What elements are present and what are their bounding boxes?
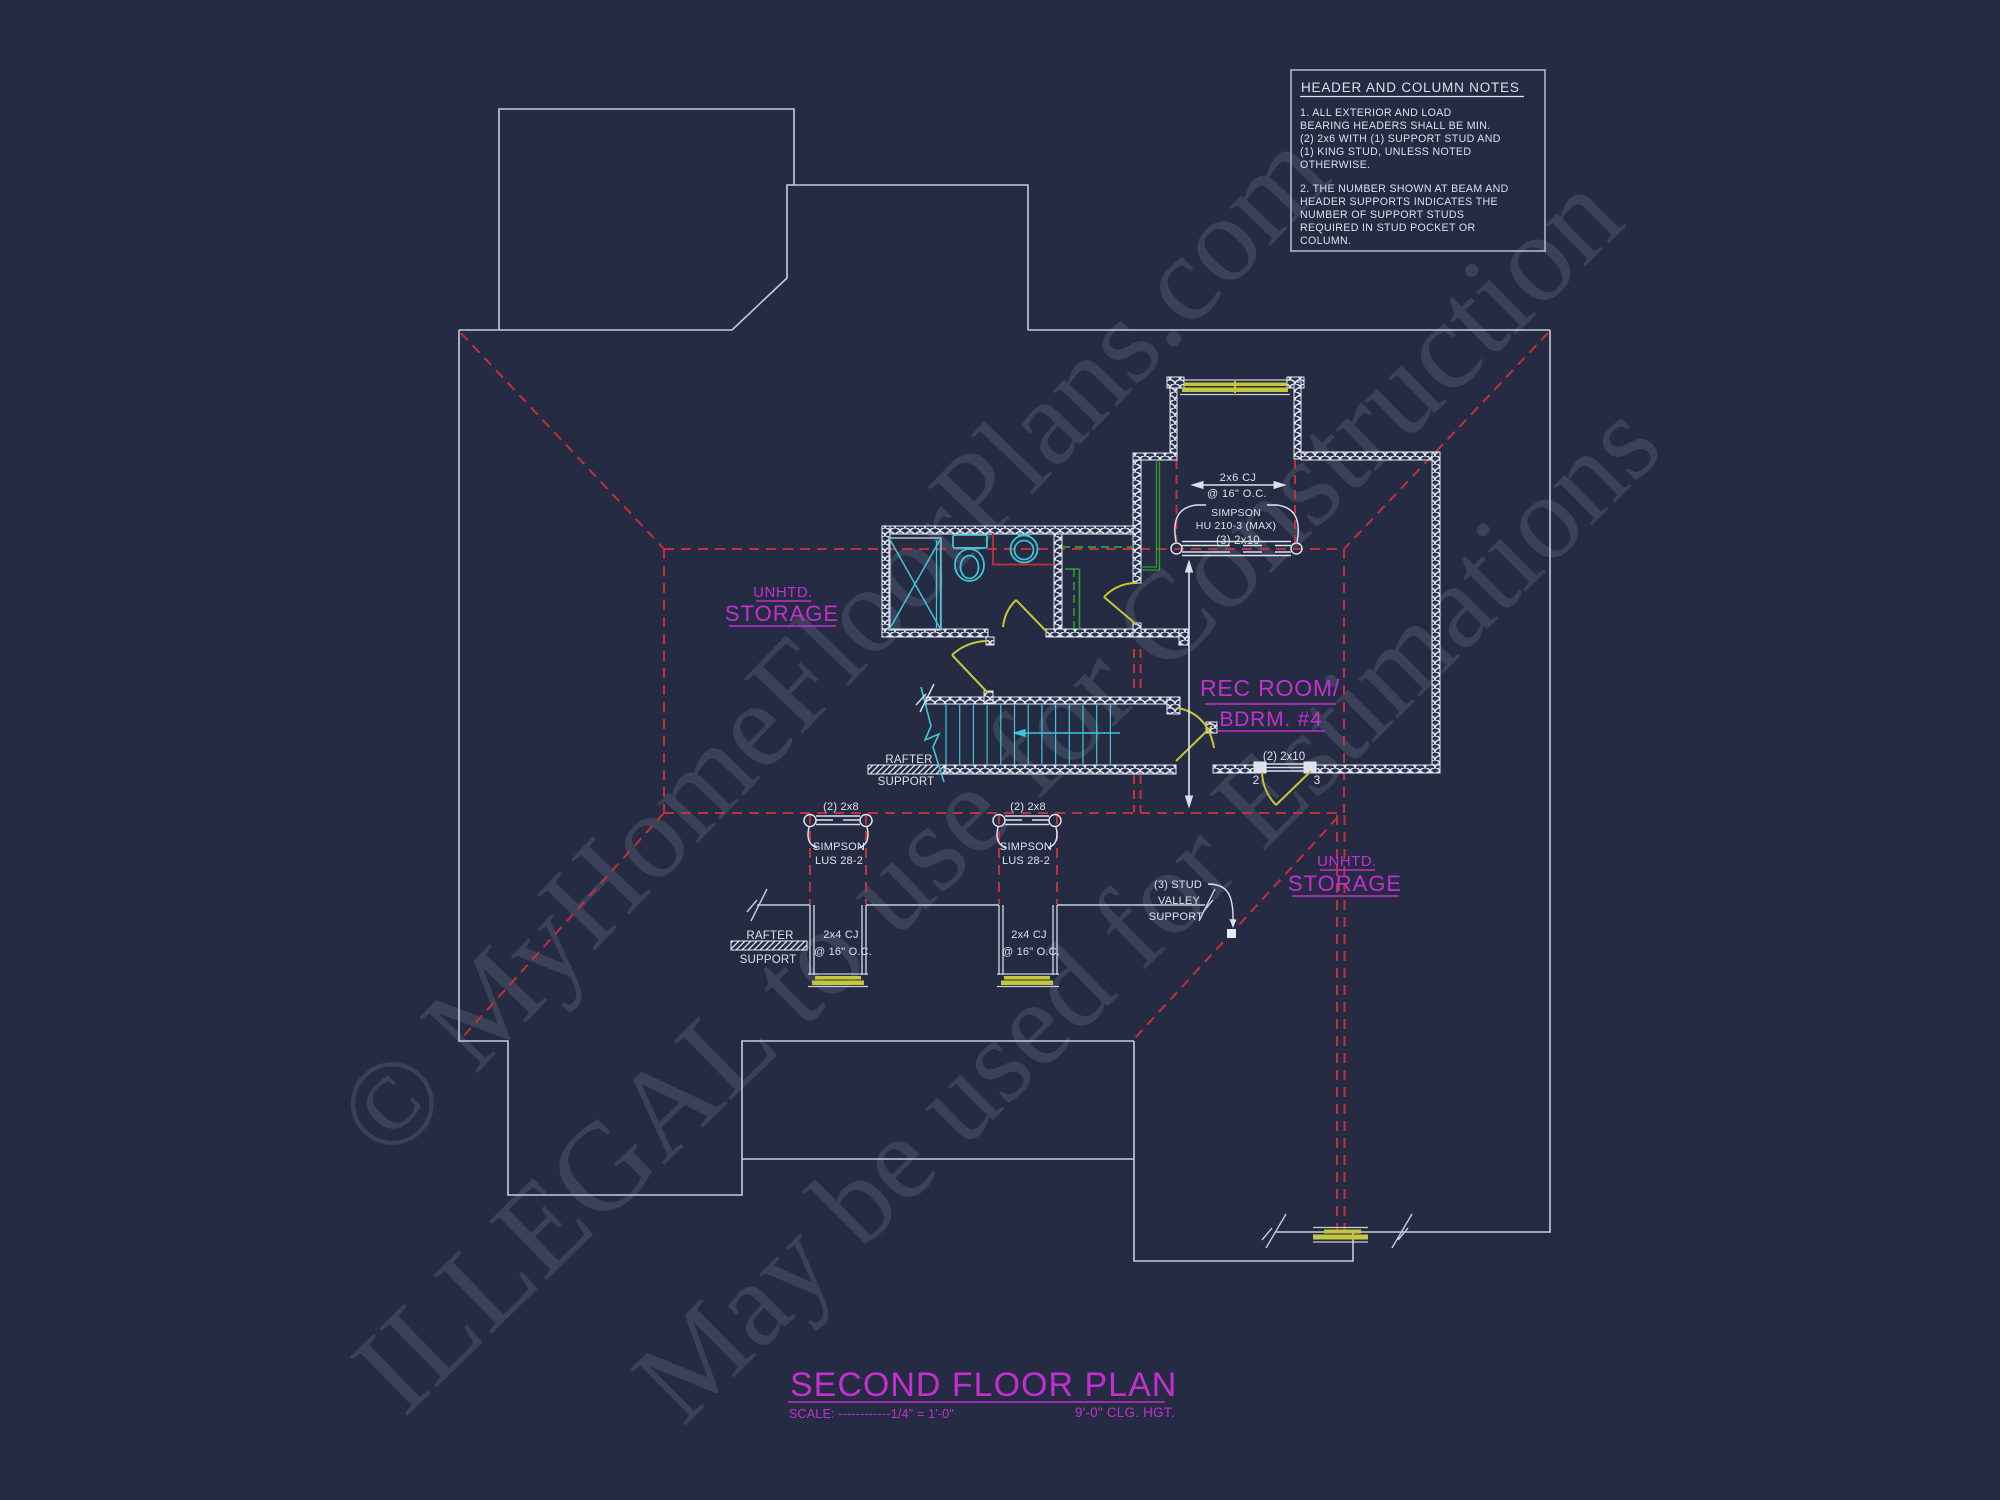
svg-text:@ 16" O.C.: @ 16" O.C. (814, 946, 872, 958)
svg-text:VALLEY: VALLEY (1158, 895, 1200, 907)
svg-text:SUPPORT: SUPPORT (740, 954, 797, 966)
svg-text:(2) 2x8: (2) 2x8 (823, 801, 859, 813)
svg-text:BEARING HEADERS SHALL BE MIN.: BEARING HEADERS SHALL BE MIN. (1300, 120, 1491, 132)
svg-text:SUPPORT: SUPPORT (1149, 911, 1203, 923)
svg-text:LUS 28-2: LUS 28-2 (1002, 855, 1050, 867)
svg-text:SCALE: ------------1/4" = 1'-0: SCALE: ------------1/4" = 1'-0" (789, 1407, 954, 1421)
svg-text:@ 16" O.C.: @ 16" O.C. (1002, 946, 1060, 958)
svg-text:@ 16" O.C.: @ 16" O.C. (1207, 488, 1267, 500)
svg-text:2x4 CJ: 2x4 CJ (1011, 929, 1046, 941)
svg-text:LUS 28-2: LUS 28-2 (815, 855, 863, 867)
svg-text:SECOND FLOOR PLAN: SECOND FLOOR PLAN (790, 1366, 1177, 1404)
svg-text:(1) KING STUD, UNLESS NOTED: (1) KING STUD, UNLESS NOTED (1300, 146, 1471, 158)
svg-text:SIMPSON: SIMPSON (1211, 507, 1261, 519)
svg-text:BDRM. #4: BDRM. #4 (1219, 708, 1322, 731)
svg-text:HEADER AND COLUMN NOTES: HEADER AND COLUMN NOTES (1301, 80, 1520, 95)
svg-text:9'-0" CLG. HGT.: 9'-0" CLG. HGT. (1075, 1405, 1175, 1420)
svg-text:2x4 CJ: 2x4 CJ (823, 929, 858, 941)
svg-text:2x6 CJ: 2x6 CJ (1220, 472, 1257, 484)
svg-text:REQUIRED IN STUD POCKET OR: REQUIRED IN STUD POCKET OR (1300, 222, 1475, 234)
svg-text:HEADER SUPPORTS INDICATES THE: HEADER SUPPORTS INDICATES THE (1300, 196, 1498, 208)
svg-text:UNHTD.: UNHTD. (753, 584, 813, 601)
svg-text:COLUMN.: COLUMN. (1300, 235, 1351, 247)
svg-text:RAFTER: RAFTER (885, 754, 932, 766)
svg-text:3: 3 (1314, 773, 1321, 787)
svg-text:SIMPSON: SIMPSON (1000, 841, 1052, 853)
svg-text:HU 210-3 (MAX): HU 210-3 (MAX) (1196, 520, 1276, 532)
svg-text:2: 2 (1253, 773, 1260, 787)
svg-text:(3) STUD: (3) STUD (1154, 879, 1202, 891)
svg-text:OTHERWISE.: OTHERWISE. (1300, 159, 1370, 171)
svg-text:REC ROOM/: REC ROOM/ (1200, 675, 1340, 701)
svg-text:STORAGE: STORAGE (1288, 871, 1402, 896)
svg-text:(2) 2x10: (2) 2x10 (1263, 751, 1305, 763)
svg-text:RAFTER: RAFTER (746, 930, 793, 942)
svg-text:(3) 2x10: (3) 2x10 (1216, 535, 1260, 547)
svg-text:STORAGE: STORAGE (725, 601, 839, 626)
svg-text:(2) 2x8: (2) 2x8 (1010, 801, 1046, 813)
svg-text:NUMBER OF SUPPORT STUDS: NUMBER OF SUPPORT STUDS (1300, 209, 1464, 221)
svg-text:SUPPORT: SUPPORT (878, 776, 935, 788)
svg-text:UNHTD.: UNHTD. (1317, 853, 1377, 870)
svg-text:2. THE NUMBER SHOWN AT BEAM AN: 2. THE NUMBER SHOWN AT BEAM AND (1300, 183, 1509, 195)
svg-text:1. ALL EXTERIOR AND LOAD: 1. ALL EXTERIOR AND LOAD (1300, 107, 1452, 119)
svg-text:(2) 2x6 WITH (1) SUPPORT STUD: (2) 2x6 WITH (1) SUPPORT STUD AND (1300, 133, 1501, 145)
svg-text:SIMPSON: SIMPSON (813, 841, 865, 853)
